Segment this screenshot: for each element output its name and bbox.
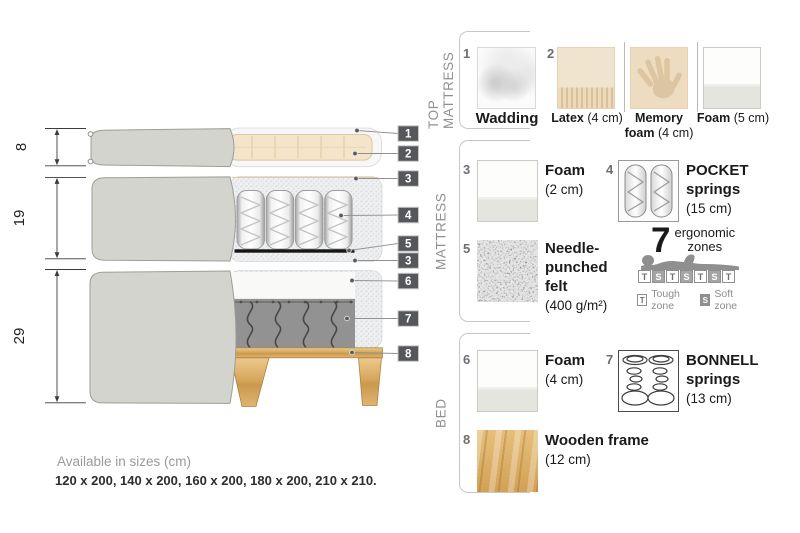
memory-foam-image bbox=[630, 47, 688, 109]
zones-title-text: ergonomic zones bbox=[674, 226, 735, 254]
wadding-image bbox=[477, 47, 536, 109]
bed-leg bbox=[231, 358, 269, 407]
wooden-frame-size: (12 cm) bbox=[545, 452, 591, 467]
item-number: 7 bbox=[606, 352, 613, 367]
item-number: 5 bbox=[463, 241, 470, 256]
bonnell-springs-icon bbox=[619, 351, 677, 410]
item-number: 6 bbox=[463, 352, 470, 367]
dimension-lines bbox=[45, 129, 86, 403]
foam-5cm-name: Foam bbox=[697, 111, 730, 125]
latex-name: Latex bbox=[551, 111, 584, 125]
divider bbox=[624, 42, 625, 112]
zone-box-tough: T bbox=[694, 270, 707, 283]
foam-4cm-size: (4 cm) bbox=[545, 372, 583, 387]
soft-zone-key: S bbox=[700, 294, 710, 306]
dimension-label-top-mattress: 8 bbox=[13, 143, 30, 151]
latex-image bbox=[557, 47, 615, 109]
svg-text:4: 4 bbox=[405, 210, 412, 222]
svg-text:8: 8 bbox=[405, 349, 412, 361]
zone-box-soft: S bbox=[708, 270, 721, 283]
felt-label: Needle- punched felt (400 g/m²) bbox=[545, 239, 608, 315]
section-label-mattress: MATTRESS bbox=[430, 140, 452, 322]
foam-4cm-name: Foam bbox=[545, 352, 585, 369]
zone-box-tough: T bbox=[722, 270, 735, 283]
svg-text:1: 1 bbox=[405, 129, 412, 141]
foam-2cm-size: (2 cm) bbox=[545, 182, 583, 197]
item-number: 8 bbox=[463, 432, 470, 447]
zone-box-tough: T bbox=[638, 270, 651, 283]
bonnell-springs-image bbox=[618, 350, 679, 412]
pocket-springs-image bbox=[618, 160, 679, 222]
bonnell-springs-layer bbox=[233, 299, 355, 348]
divider bbox=[697, 42, 698, 112]
sizes-title: Available in sizes (cm) bbox=[57, 454, 191, 469]
memory-foam-name-2: foam bbox=[625, 126, 655, 140]
felt-name-1: Needle- bbox=[545, 240, 599, 257]
wadding-label: Wadding bbox=[472, 111, 542, 126]
svg-text:3: 3 bbox=[405, 256, 411, 268]
foam-5cm-size: (5 cm) bbox=[734, 111, 769, 125]
item-number: 3 bbox=[463, 162, 470, 177]
svg-text:5: 5 bbox=[405, 239, 412, 251]
zone-box-tough: T bbox=[666, 270, 679, 283]
cover-loop bbox=[88, 132, 93, 137]
zone-boxes: T S T S T S T bbox=[638, 270, 735, 283]
bonnell-size: (13 cm) bbox=[686, 391, 732, 406]
item-number: 4 bbox=[606, 162, 613, 177]
bed-foam-layer bbox=[231, 272, 355, 299]
tough-zone-key: T bbox=[637, 294, 647, 306]
svg-text:2: 2 bbox=[405, 149, 411, 161]
latex-label: Latex (4 cm) bbox=[548, 111, 626, 126]
soft-zone-label: Soft zone bbox=[714, 288, 751, 312]
felt-name-2: punched bbox=[545, 259, 608, 276]
item-number: 2 bbox=[547, 46, 554, 61]
tough-zone-label: Tough zone bbox=[651, 288, 696, 312]
ergonomic-zones-block: 7 ergonomic zones T S T S T S T T Tough … bbox=[637, 226, 751, 300]
wooden-frame-image bbox=[477, 430, 538, 492]
foam-4cm-image bbox=[477, 350, 538, 412]
section-label-top-mattress: TOP MATTRESS bbox=[430, 31, 452, 129]
cover-loop bbox=[88, 159, 93, 164]
infographic: 8 19 29 1 2 3 bbox=[0, 0, 800, 533]
bonnell-name-2: springs bbox=[686, 371, 740, 388]
svg-text:6: 6 bbox=[405, 276, 411, 288]
mattress-section bbox=[92, 177, 382, 262]
felt-image bbox=[477, 240, 538, 302]
bed-leg bbox=[359, 358, 382, 406]
pocket-size: (15 cm) bbox=[686, 201, 732, 216]
zone-box-soft: S bbox=[652, 270, 665, 283]
memory-foam-label: Memory foam (4 cm) bbox=[617, 111, 701, 141]
bed-section bbox=[90, 271, 383, 407]
wooden-frame-name: Wooden frame bbox=[545, 432, 649, 449]
felt-size: (400 g/m²) bbox=[545, 298, 607, 313]
svg-text:3: 3 bbox=[405, 174, 411, 186]
sizes-list: 120 x 200, 140 x 200, 160 x 200, 180 x 2… bbox=[55, 473, 377, 488]
foam-2cm-image bbox=[477, 160, 538, 222]
pocket-name-2: springs bbox=[686, 181, 740, 198]
wooden-frame-label: Wooden frame (12 cm) bbox=[545, 431, 649, 469]
top-mattress-cover bbox=[91, 129, 234, 167]
pocket-name-1: POCKET bbox=[686, 162, 749, 179]
pocket-springs-icon bbox=[619, 161, 678, 221]
foam-5cm-label: Foam (5 cm) bbox=[695, 111, 771, 126]
foam-2cm-label: Foam (2 cm) bbox=[545, 161, 585, 199]
pocket-springs-label: POCKET springs (15 cm) bbox=[686, 161, 749, 218]
bonnell-name-1: BONNELL bbox=[686, 352, 759, 369]
foam-2cm-name: Foam bbox=[545, 162, 585, 179]
memory-foam-name-1: Memory bbox=[635, 111, 683, 125]
zone-legend: T Tough zone S Soft zone bbox=[637, 288, 751, 312]
section-label-bed: BED bbox=[430, 333, 452, 493]
felt-name-3: felt bbox=[545, 278, 568, 295]
bed-cover bbox=[90, 271, 236, 403]
bonnell-springs-label: BONNELL springs (13 cm) bbox=[686, 351, 759, 408]
mattress-cover bbox=[92, 177, 236, 261]
top-mattress-section bbox=[88, 128, 381, 167]
memory-foam-size: (4 cm) bbox=[658, 126, 693, 140]
hand-imprint-icon bbox=[631, 48, 689, 110]
felt-texture-icon bbox=[477, 240, 538, 302]
item-number: 1 bbox=[463, 46, 470, 61]
felt-layer bbox=[235, 249, 355, 252]
person-icon bbox=[638, 252, 742, 270]
foam-5cm-image bbox=[703, 47, 761, 109]
zones-title-line1: ergonomic bbox=[674, 225, 735, 240]
svg-text:7: 7 bbox=[405, 314, 411, 326]
dimension-label-bed: 29 bbox=[11, 328, 28, 345]
foam-4cm-label: Foam (4 cm) bbox=[545, 351, 585, 389]
dimension-label-mattress: 19 bbox=[11, 210, 28, 227]
zone-box-soft: S bbox=[680, 270, 693, 283]
